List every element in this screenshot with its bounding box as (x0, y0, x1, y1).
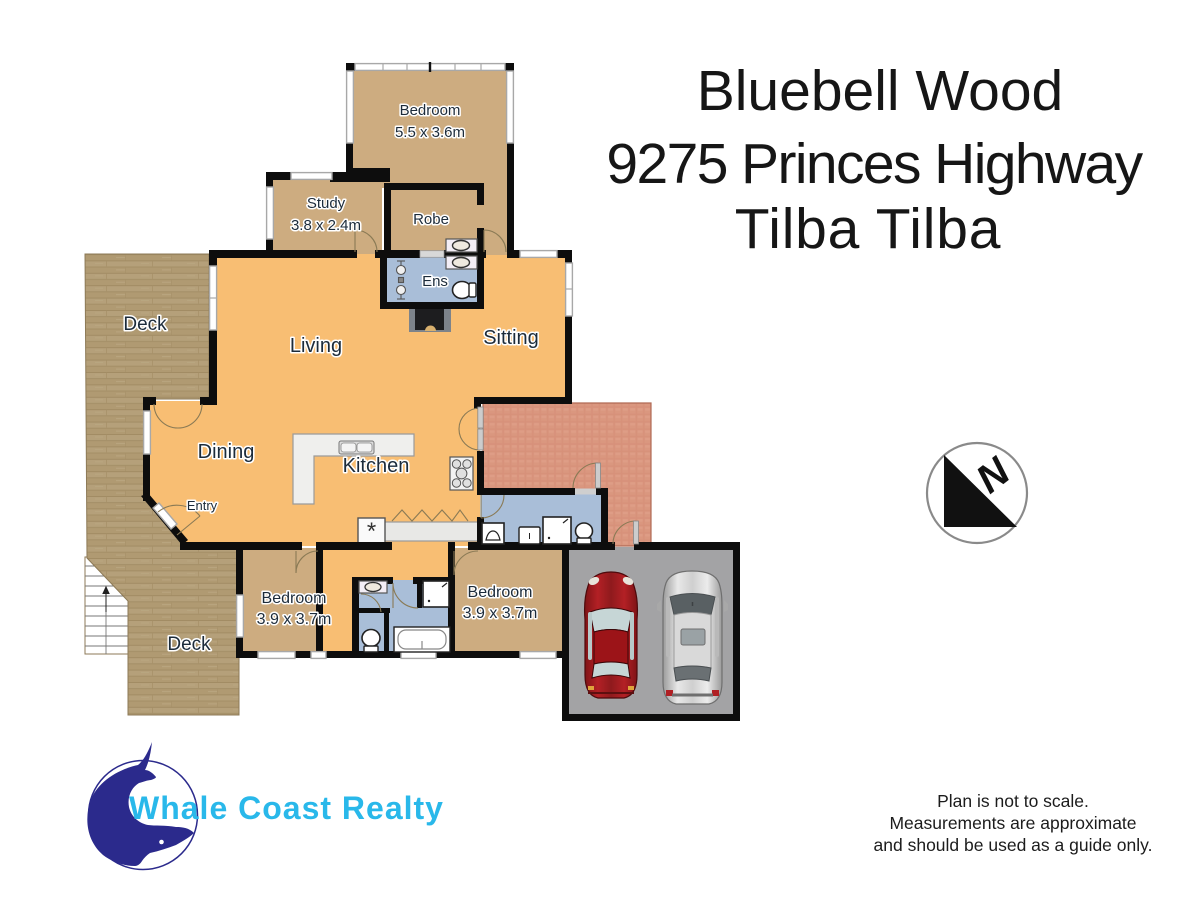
svg-text:Dining: Dining (198, 441, 255, 463)
svg-text:Measurements are approximate: Measurements are approximate (889, 813, 1136, 833)
svg-text:3.8 x 2.4m: 3.8 x 2.4m (291, 217, 361, 234)
svg-text:9275 Princes Highway: 9275 Princes Highway (606, 132, 1143, 196)
svg-text:Deck: Deck (167, 634, 211, 655)
svg-text:Living: Living (290, 335, 342, 357)
svg-text:Bedroom: Bedroom (468, 584, 533, 601)
svg-text:Kitchen: Kitchen (343, 455, 410, 477)
svg-text:Study: Study (307, 195, 346, 212)
svg-text:Deck: Deck (123, 314, 167, 335)
svg-text:Whale Coast Realty: Whale Coast Realty (129, 790, 444, 826)
svg-text:3.9 x 3.7m: 3.9 x 3.7m (463, 605, 538, 622)
svg-text:Bedroom: Bedroom (262, 590, 327, 607)
svg-text:Bluebell Wood: Bluebell Wood (697, 59, 1064, 123)
svg-text:and should be used as a guide: and should be used as a guide only. (874, 835, 1153, 855)
svg-text:Sitting: Sitting (483, 327, 539, 349)
svg-text:Entry: Entry (187, 498, 218, 513)
svg-text:3.9 x 3.7m: 3.9 x 3.7m (257, 611, 332, 628)
svg-text:Tilba Tilba: Tilba Tilba (735, 197, 1001, 261)
svg-text:Bedroom: Bedroom (400, 102, 461, 119)
svg-text:Plan is not to scale.: Plan is not to scale. (937, 791, 1089, 811)
svg-text:5.5 x 3.6m: 5.5 x 3.6m (395, 124, 465, 141)
svg-text:Ens: Ens (422, 273, 448, 290)
svg-text:*: * (367, 518, 376, 545)
svg-text:Robe: Robe (413, 211, 449, 228)
